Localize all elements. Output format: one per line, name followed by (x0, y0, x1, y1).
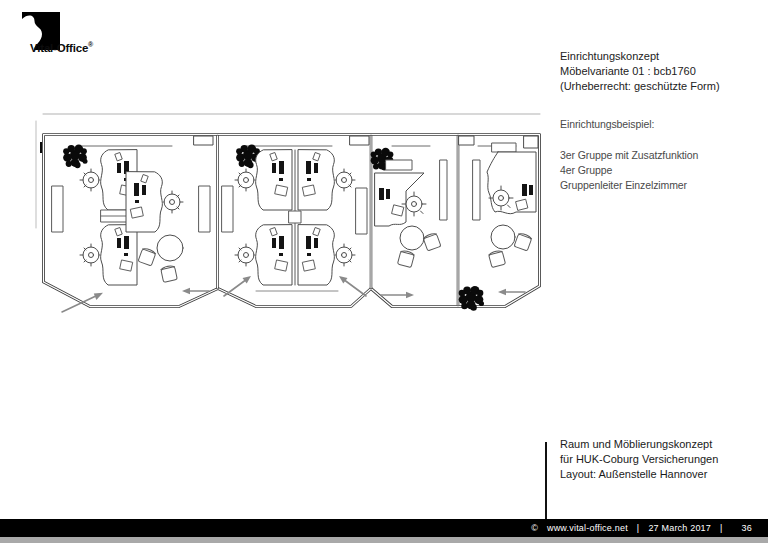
footer-separator: | (637, 523, 640, 533)
project-line: Layout: Außenstelle Hannover (560, 467, 718, 482)
registered-mark: ® (88, 41, 93, 48)
example-item: Gruppenleiter Einzelzimmer (560, 178, 698, 193)
page-number: 36 (742, 523, 752, 533)
footer-separator: | (720, 523, 723, 533)
logo: Vital-Office® (22, 12, 182, 56)
footer-date: 27 March 2017 (648, 523, 711, 533)
title-line: Möbelvariante 01 : bcb1760 (560, 64, 720, 79)
project-line: für HUK-Coburg Versicherungen (560, 452, 718, 467)
project-line: Raum und Möblierungskonzept (560, 437, 718, 452)
concept-sheet-page: Vital-Office® Einrichtungskonzept Möbelv… (0, 0, 768, 543)
title-line: (Urheberrecht: geschützte Form) (560, 79, 720, 94)
logo-text: Vital-Office® (30, 41, 93, 54)
copyright-icon: © (531, 523, 538, 533)
footer-website: www.vital-office.net (547, 523, 628, 533)
example-item: 4er Gruppe (560, 163, 698, 178)
project-block-rule (545, 442, 547, 519)
project-block: Raum und Möblierungskonzept für HUK-Cobu… (560, 437, 718, 482)
title-line: Einrichtungskonzept (560, 49, 720, 64)
logo-brand-name: Vital-Office (30, 42, 88, 54)
footer-bar: © www.vital-office.net | 27 March 2017 |… (0, 519, 768, 537)
page-edge-strip (0, 537, 768, 543)
example-block: Einrichtungsbeispiel: 3er Gruppe mit Zus… (560, 117, 698, 193)
example-heading: Einrichtungsbeispiel: (560, 117, 698, 132)
title-block: Einrichtungskonzept Möbelvariante 01 : b… (560, 49, 720, 94)
example-item: 3er Gruppe mit Zusatzfunktion (560, 148, 698, 163)
